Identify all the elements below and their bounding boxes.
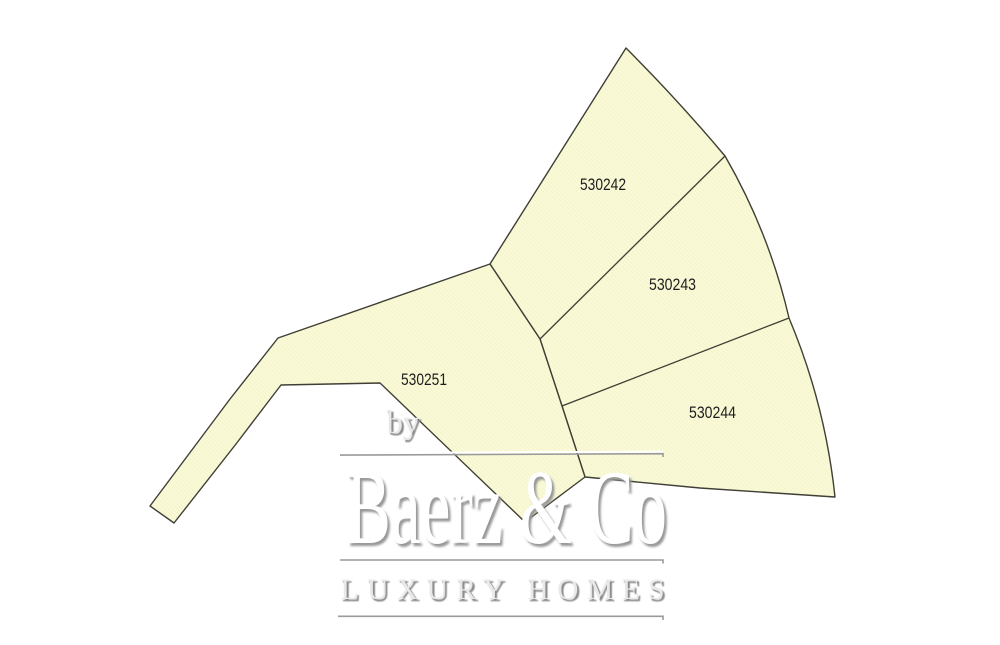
svg-text:530242: 530242 [580,175,626,194]
svg-text:by: by [387,405,421,441]
svg-text:530251: 530251 [401,370,447,389]
svg-text:LUXURY HOMES: LUXURY HOMES [342,576,666,608]
svg-text:Baerz & Co: Baerz & Co [346,449,667,566]
svg-text:530243: 530243 [649,275,696,294]
svg-text:530244: 530244 [689,403,736,422]
